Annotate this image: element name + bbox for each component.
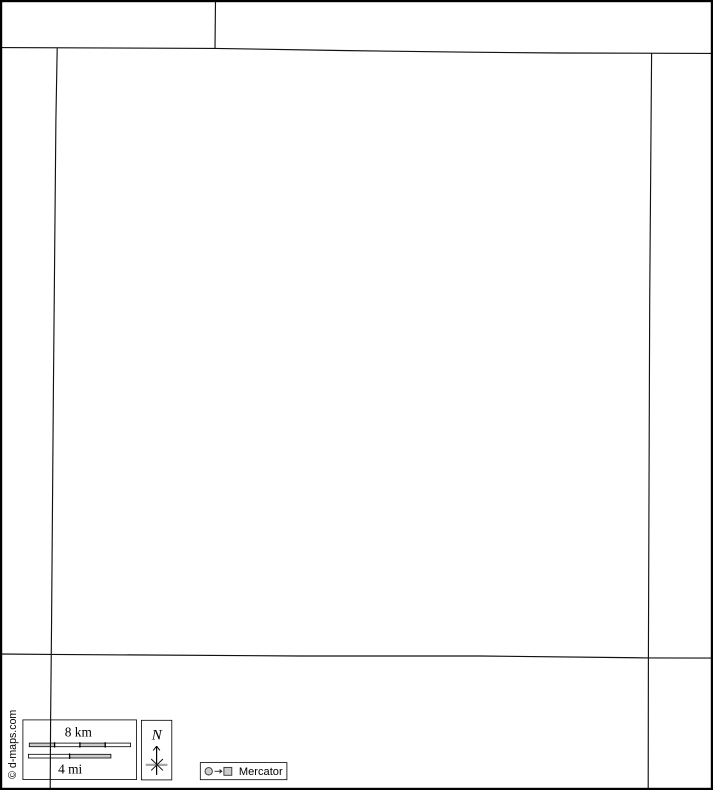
- svg-text:N: N: [151, 727, 163, 743]
- svg-text:Mercator: Mercator: [239, 766, 283, 778]
- svg-text:© d-maps.com: © d-maps.com: [7, 710, 19, 779]
- svg-text:8 km: 8 km: [65, 725, 93, 740]
- svg-text:4 mi: 4 mi: [58, 761, 82, 776]
